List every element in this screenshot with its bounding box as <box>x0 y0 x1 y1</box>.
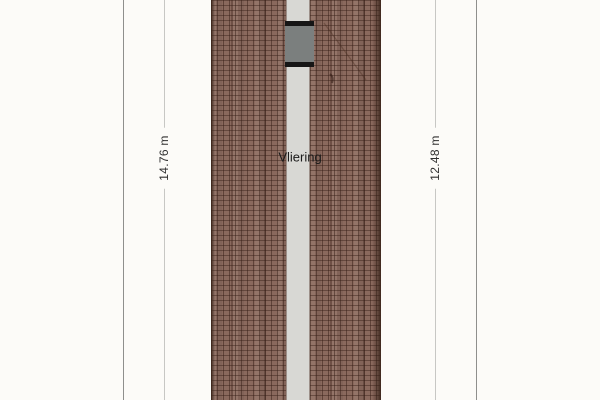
left-boundary-line <box>123 0 124 400</box>
left-dimension-label: 14.76 m <box>157 127 171 188</box>
right-dimension-label: 12.48 m <box>428 127 442 188</box>
room-label: Vliering <box>278 150 321 165</box>
left-dimension-line <box>164 0 165 400</box>
right-dimension-line <box>435 0 436 400</box>
roof-mark <box>330 74 333 83</box>
right-boundary-line <box>476 0 477 400</box>
floorplan-view: 14.76 m 12.48 m Vliering <box>0 0 600 400</box>
building-roof: Vliering <box>211 0 381 400</box>
roof-detail-overlay <box>211 0 381 110</box>
roof-crease-line <box>324 23 366 80</box>
